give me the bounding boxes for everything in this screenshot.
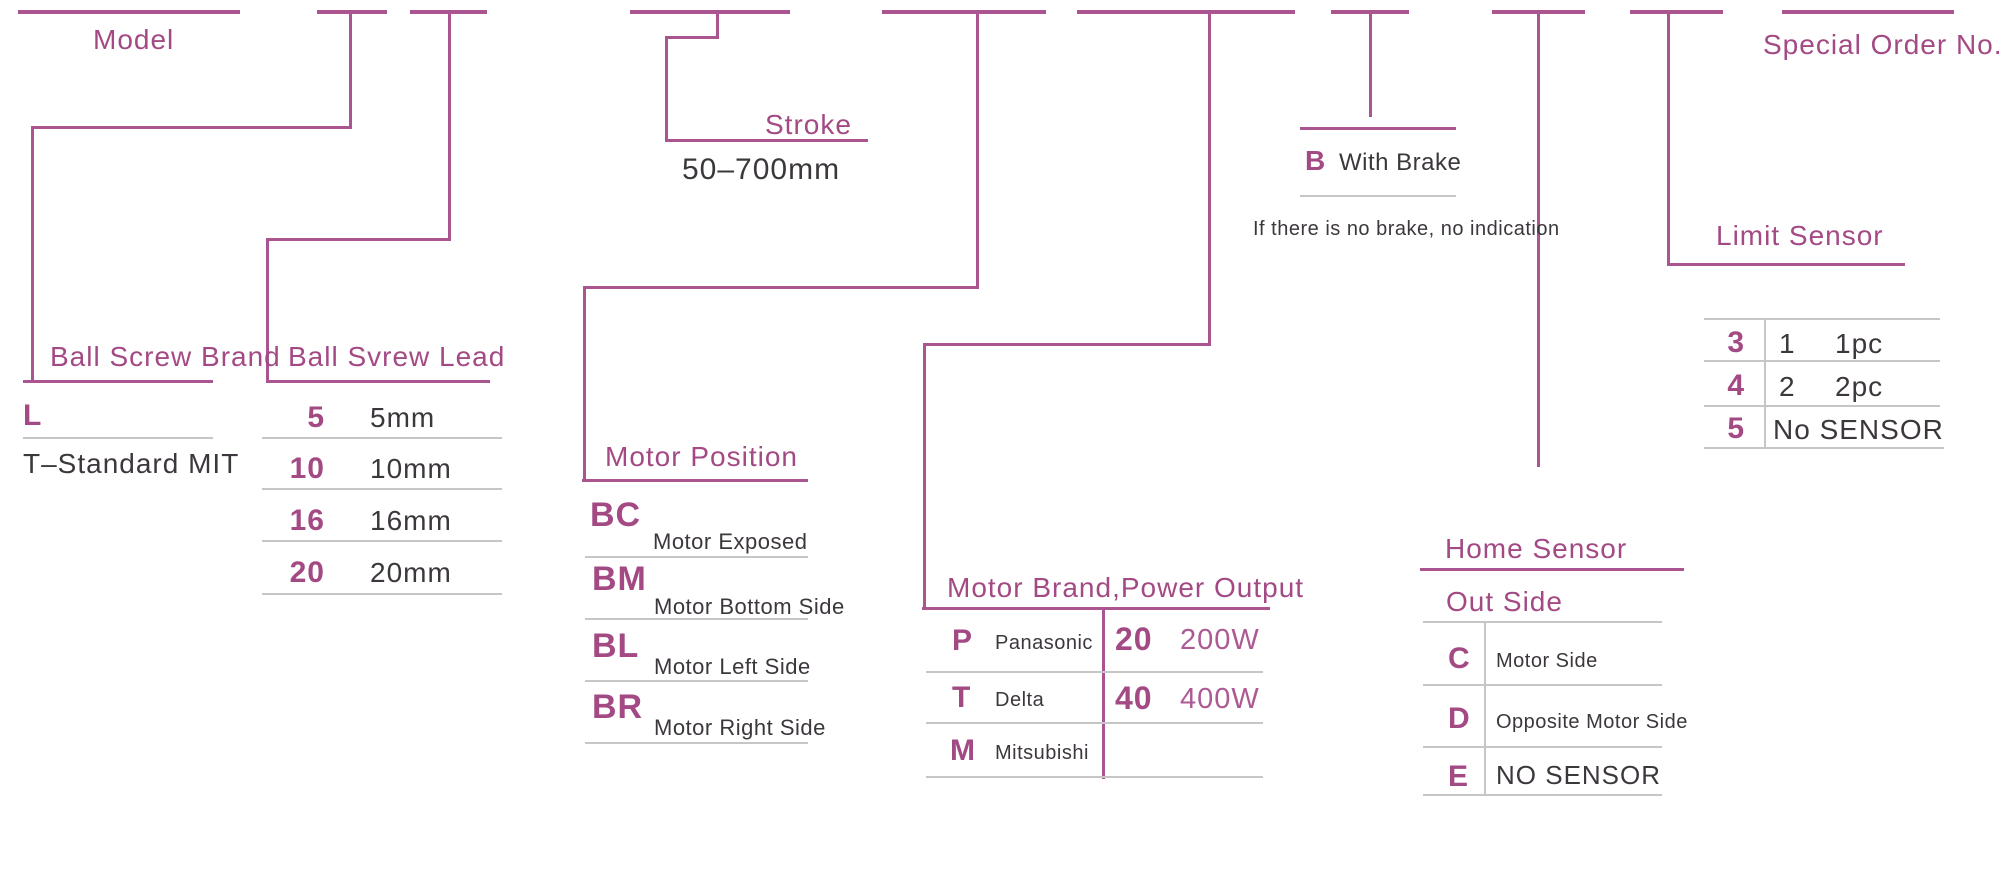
connector-line bbox=[1667, 12, 1670, 266]
brand-value: Panasonic bbox=[995, 633, 1093, 653]
lead-row-value: 16mm bbox=[370, 507, 452, 535]
lead-row-value: 10mm bbox=[370, 455, 452, 483]
row-divider bbox=[23, 437, 213, 439]
power-value: 400W bbox=[1180, 685, 1260, 714]
column-divider bbox=[1102, 609, 1105, 779]
section-underline bbox=[266, 380, 490, 383]
limit-sensor-value: 1pc bbox=[1835, 330, 1883, 358]
row-divider bbox=[585, 742, 808, 744]
section-underline bbox=[665, 139, 868, 142]
row-divider bbox=[926, 722, 1263, 724]
row-divider bbox=[1423, 621, 1662, 623]
tick-ball-screw-brand bbox=[317, 10, 387, 14]
home-sensor-value: Motor Side bbox=[1496, 651, 1598, 671]
row-divider bbox=[1423, 794, 1662, 796]
connector-line bbox=[31, 126, 34, 383]
power-value: 200W bbox=[1180, 626, 1260, 655]
row-divider bbox=[262, 437, 502, 439]
connector-line bbox=[349, 12, 352, 128]
row-divider bbox=[926, 776, 1263, 778]
lead-row-value: 5mm bbox=[370, 404, 435, 432]
row-divider bbox=[585, 618, 808, 620]
ball-screw-brand-description: T–Standard MIT bbox=[23, 450, 239, 478]
row-divider bbox=[926, 671, 1263, 673]
motor-brand-title: Motor Brand,Power Output bbox=[947, 574, 1304, 602]
connector-line bbox=[665, 36, 668, 142]
connector-line bbox=[716, 12, 719, 39]
row-divider bbox=[1300, 195, 1456, 197]
home-sensor-code: D bbox=[1448, 704, 1471, 734]
section-underline bbox=[1300, 127, 1456, 130]
tick-stroke bbox=[630, 10, 790, 14]
tick-motor-brand bbox=[1077, 10, 1295, 14]
motor-position-code: BL bbox=[592, 629, 639, 663]
ball-screw-brand-title: Ball Screw Brand bbox=[50, 343, 281, 371]
home-sensor-value: NO SENSOR bbox=[1496, 762, 1661, 788]
row-divider bbox=[585, 680, 808, 682]
tick-motor-position bbox=[882, 10, 1046, 14]
limit-sensor-code: 4 bbox=[1712, 371, 1745, 401]
connector-line bbox=[1208, 12, 1211, 346]
connector-line bbox=[923, 343, 1211, 346]
lead-row-code: 16 bbox=[278, 506, 325, 536]
row-divider bbox=[262, 488, 502, 490]
column-divider bbox=[1484, 621, 1486, 794]
limit-sensor-code: 5 bbox=[1712, 414, 1745, 444]
brand-value: Mitsubishi bbox=[995, 743, 1089, 763]
tick-model bbox=[18, 10, 240, 14]
connector-line bbox=[266, 238, 451, 241]
row-divider bbox=[585, 556, 808, 558]
special-order-label: Special Order No. bbox=[1763, 31, 2000, 59]
tick-special-order bbox=[1782, 10, 1954, 14]
row-divider bbox=[1704, 360, 1940, 362]
home-sensor-value: Opposite Motor Side bbox=[1496, 712, 1688, 732]
limit-sensor-qty: 2 bbox=[1779, 373, 1796, 401]
ordering-code-diagram: Model Ball Screw Brand L T–Standard MIT … bbox=[0, 0, 2000, 893]
motor-position-code: BM bbox=[592, 562, 647, 596]
connector-line bbox=[976, 12, 979, 289]
connector-line bbox=[31, 126, 352, 129]
lead-row-code: 20 bbox=[278, 558, 325, 588]
tick-limit-sensor bbox=[1630, 10, 1723, 14]
motor-position-value: Motor Right Side bbox=[654, 717, 826, 739]
limit-sensor-qty: 1 bbox=[1779, 330, 1796, 358]
section-underline bbox=[582, 479, 808, 482]
motor-position-value: Motor Left Side bbox=[654, 656, 811, 678]
motor-position-value: Motor Exposed bbox=[653, 531, 807, 553]
row-divider bbox=[1423, 746, 1662, 748]
row-divider bbox=[262, 593, 502, 595]
column-divider bbox=[1764, 318, 1766, 449]
home-sensor-subtitle: Out Side bbox=[1446, 588, 1563, 616]
connector-line bbox=[583, 286, 979, 289]
brake-note: If there is no brake, no indication bbox=[1253, 219, 1560, 239]
home-sensor-code: E bbox=[1448, 762, 1469, 792]
row-divider bbox=[1704, 318, 1940, 320]
connector-line bbox=[665, 36, 719, 39]
ball-screw-brand-code: L bbox=[23, 401, 42, 431]
lead-row-value: 20mm bbox=[370, 559, 452, 587]
section-underline bbox=[1667, 263, 1905, 266]
motor-position-value: Motor Bottom Side bbox=[654, 596, 845, 618]
brand-code: M bbox=[950, 736, 976, 766]
home-sensor-code: C bbox=[1448, 644, 1471, 674]
power-code: 40 bbox=[1115, 682, 1153, 714]
section-underline bbox=[1420, 568, 1684, 571]
section-underline bbox=[922, 607, 1270, 610]
row-divider bbox=[1704, 447, 1944, 449]
motor-position-code: BR bbox=[592, 690, 643, 724]
brake-code: B bbox=[1305, 147, 1325, 175]
brand-code: T bbox=[952, 683, 971, 713]
row-divider bbox=[1704, 405, 1940, 407]
stroke-value: 50–700mm bbox=[682, 155, 840, 185]
stroke-title: Stroke bbox=[765, 111, 852, 139]
row-divider bbox=[262, 540, 502, 542]
lead-row-code: 10 bbox=[278, 454, 325, 484]
home-sensor-title: Home Sensor bbox=[1445, 535, 1627, 563]
motor-position-code: BC bbox=[590, 498, 641, 532]
limit-sensor-value: No SENSOR bbox=[1773, 416, 1944, 444]
limit-sensor-value: 2pc bbox=[1835, 373, 1883, 401]
connector-line bbox=[923, 343, 926, 610]
brand-code: P bbox=[952, 626, 973, 656]
lead-row-code: 5 bbox=[278, 403, 325, 433]
section-underline bbox=[23, 380, 213, 383]
brake-label: With Brake bbox=[1339, 151, 1461, 175]
connector-line bbox=[448, 12, 451, 241]
brand-value: Delta bbox=[995, 690, 1044, 710]
connector-line bbox=[1369, 12, 1372, 117]
ball-screw-lead-title: Ball Svrew Lead bbox=[288, 343, 505, 371]
limit-sensor-title: Limit Sensor bbox=[1716, 222, 1884, 250]
limit-sensor-code: 3 bbox=[1712, 328, 1745, 358]
motor-position-title: Motor Position bbox=[605, 443, 798, 471]
power-code: 20 bbox=[1115, 623, 1153, 655]
row-divider bbox=[1423, 684, 1662, 686]
connector-line bbox=[583, 286, 586, 482]
model-label: Model bbox=[93, 26, 174, 54]
